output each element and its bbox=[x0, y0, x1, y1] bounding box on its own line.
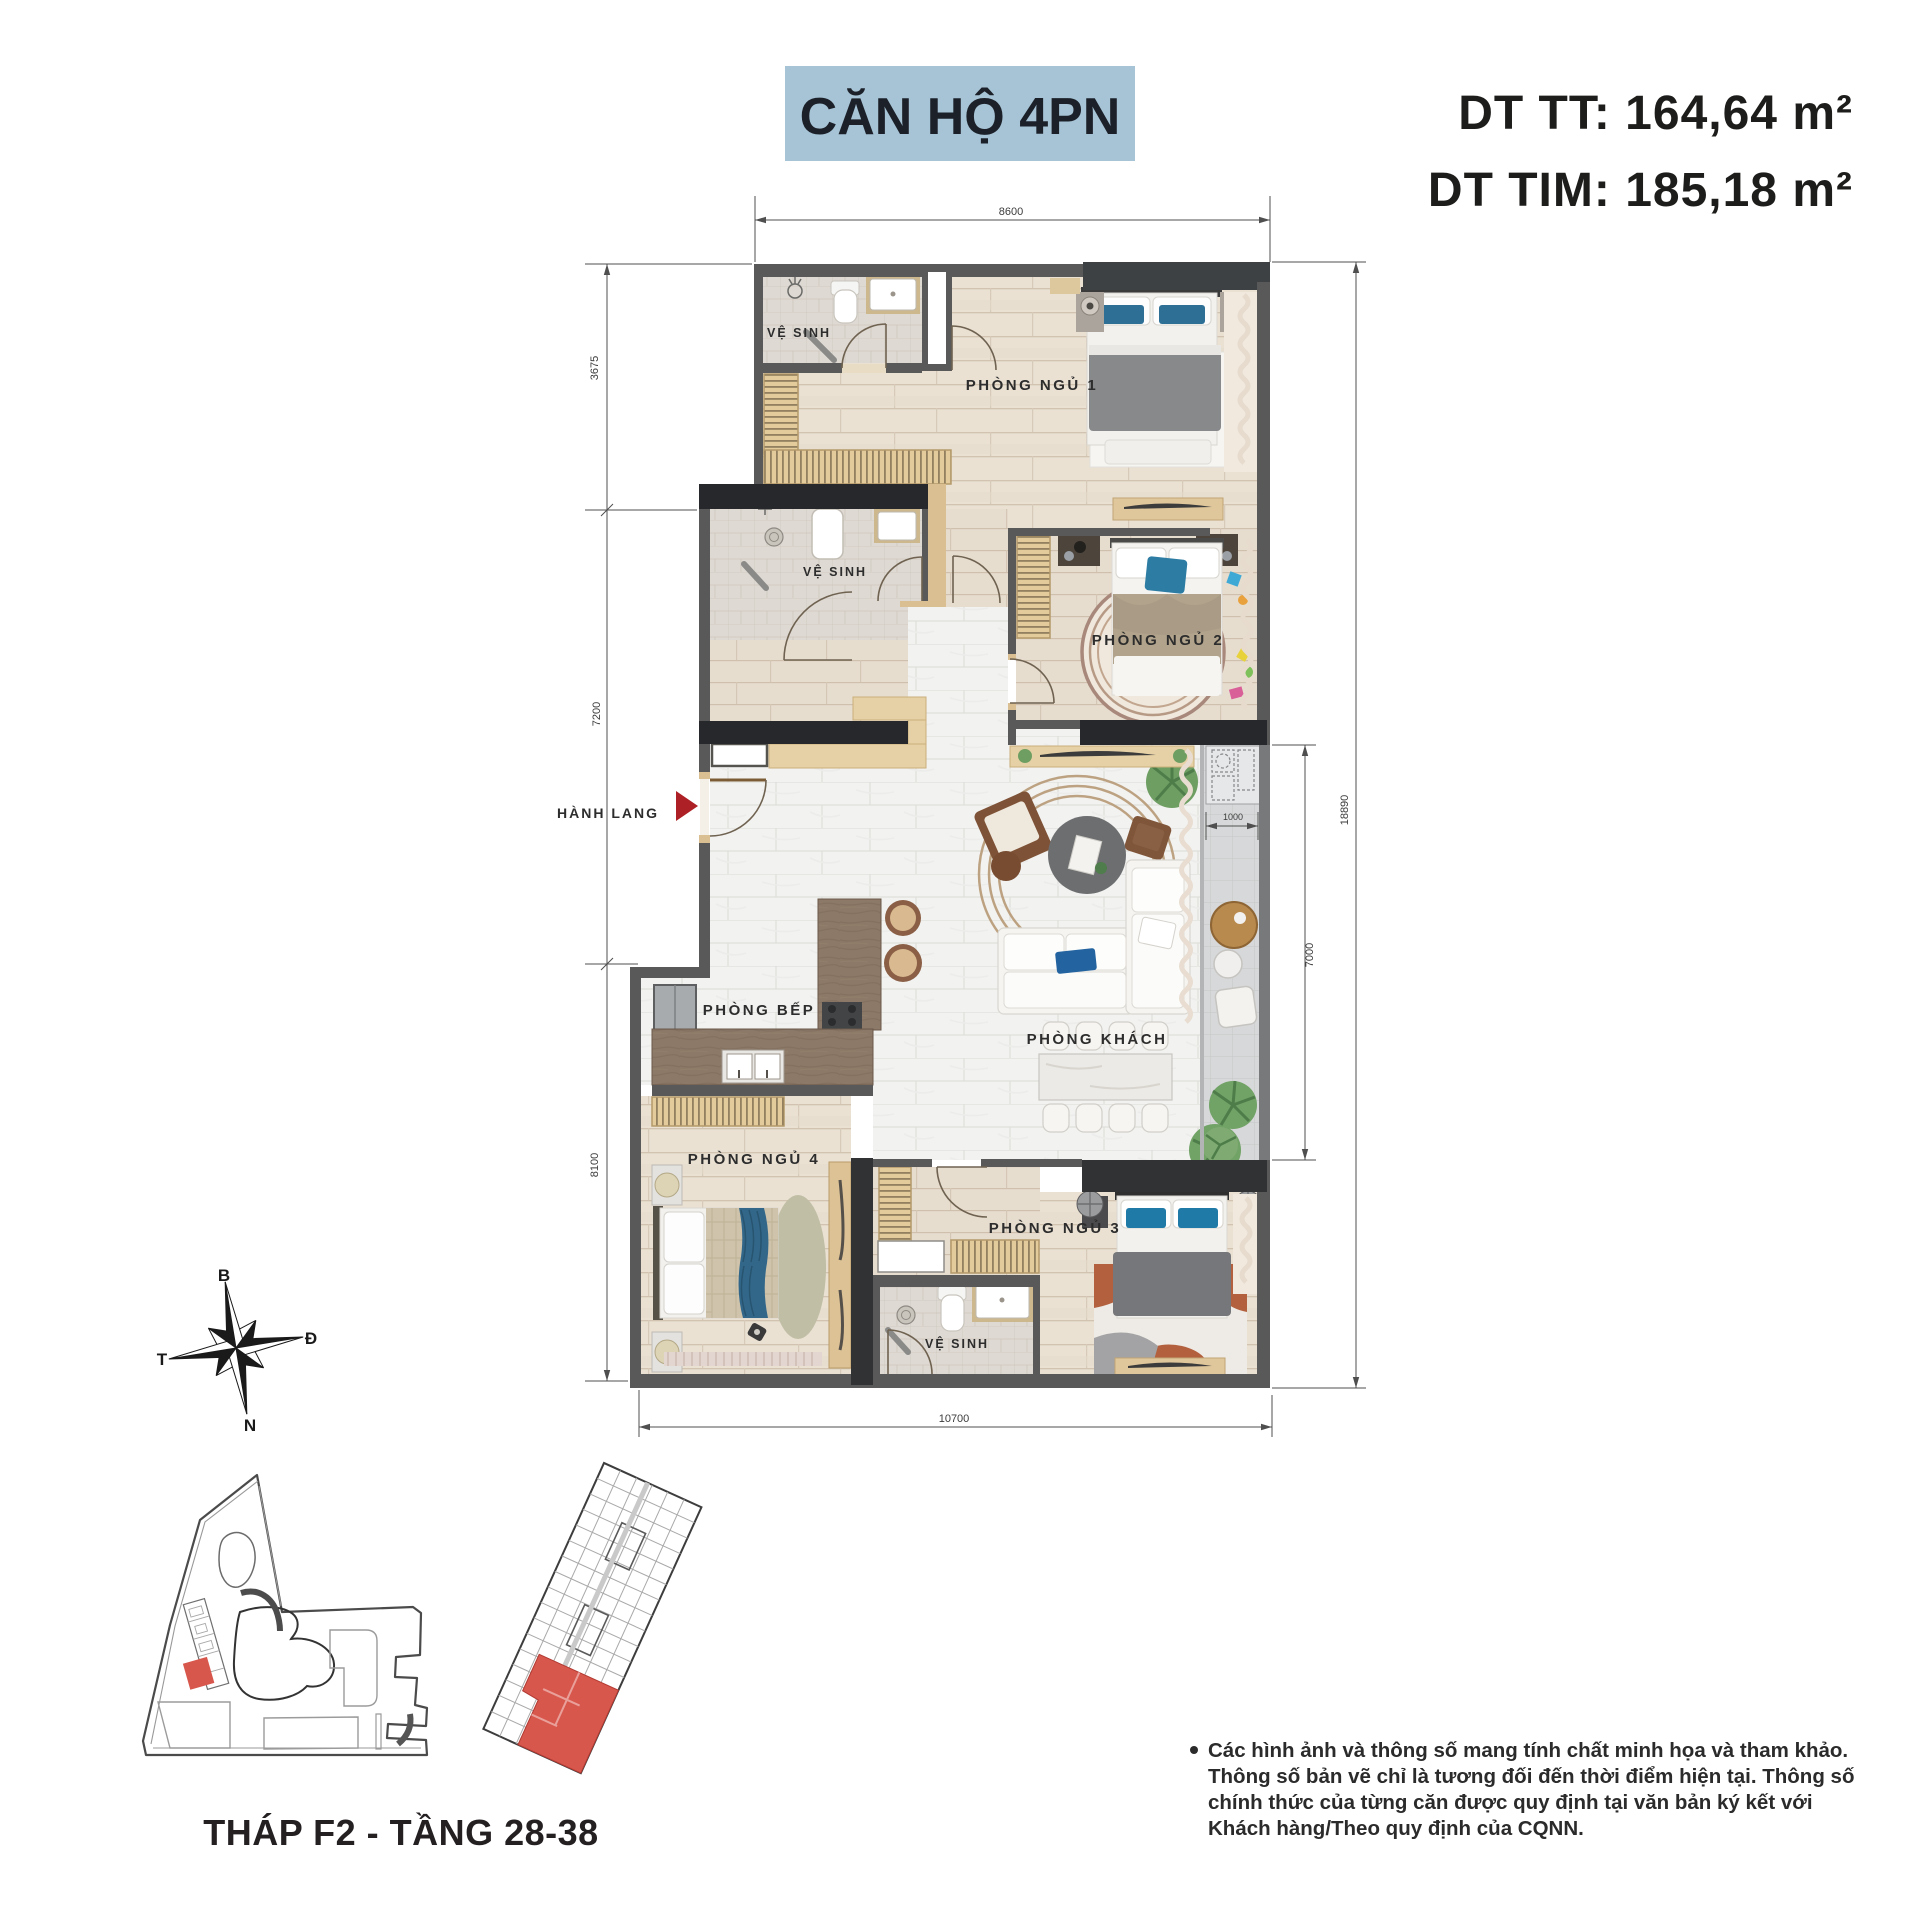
svg-text:PHÒNG NGỦ 1: PHÒNG NGỦ 1 bbox=[966, 376, 1099, 394]
svg-text:PHÒNG KHÁCH: PHÒNG KHÁCH bbox=[1027, 1030, 1168, 1048]
svg-text:PHÒNG BẾP: PHÒNG BẾP bbox=[703, 1001, 816, 1019]
svg-text:N: N bbox=[244, 1416, 256, 1435]
svg-text:18890: 18890 bbox=[1339, 795, 1351, 826]
svg-text:DT TT: 164,64 m²: DT TT: 164,64 m² bbox=[1458, 87, 1853, 140]
svg-text:THÁP F2 - TẦNG 28-38: THÁP F2 - TẦNG 28-38 bbox=[203, 1812, 598, 1853]
svg-text:VỆ SINH: VỆ SINH bbox=[925, 1336, 989, 1351]
svg-text:Khách hàng/Theo quy định của C: Khách hàng/Theo quy định của CQNN. bbox=[1208, 1817, 1584, 1840]
svg-text:8600: 8600 bbox=[999, 206, 1023, 218]
svg-text:10700: 10700 bbox=[939, 1413, 970, 1425]
svg-text:HÀNH LANG: HÀNH LANG bbox=[557, 805, 659, 821]
svg-text:chính thức của từng căn được q: chính thức của từng căn được quy định tạ… bbox=[1208, 1791, 1813, 1814]
svg-text:Các hình ảnh và thông số mang: Các hình ảnh và thông số mang tính chất … bbox=[1208, 1739, 1848, 1762]
svg-text:Đ: Đ bbox=[305, 1329, 317, 1348]
svg-text:PHÒNG NGỦ 4: PHÒNG NGỦ 4 bbox=[688, 1150, 821, 1168]
svg-text:3675: 3675 bbox=[589, 356, 601, 380]
svg-text:DT TIM: 185,18 m²: DT TIM: 185,18 m² bbox=[1428, 164, 1853, 217]
svg-text:7000: 7000 bbox=[1304, 943, 1316, 967]
svg-text:T: T bbox=[157, 1350, 168, 1369]
svg-text:CĂN HỘ 4PN: CĂN HỘ 4PN bbox=[800, 87, 1121, 146]
svg-text:PHÒNG NGỦ 2: PHÒNG NGỦ 2 bbox=[1092, 631, 1225, 649]
svg-text:VỆ SINH: VỆ SINH bbox=[803, 564, 867, 579]
svg-text:7200: 7200 bbox=[591, 702, 603, 726]
svg-text:B: B bbox=[218, 1266, 230, 1285]
svg-text:Thông số bản vẽ chỉ là tương đ: Thông số bản vẽ chỉ là tương đối đến thờ… bbox=[1208, 1765, 1854, 1788]
svg-text:PHÒNG NGỦ 3: PHÒNG NGỦ 3 bbox=[989, 1219, 1122, 1237]
svg-text:8100: 8100 bbox=[589, 1153, 601, 1177]
svg-text:VỆ SINH: VỆ SINH bbox=[767, 325, 831, 340]
svg-text:1000: 1000 bbox=[1223, 812, 1243, 822]
